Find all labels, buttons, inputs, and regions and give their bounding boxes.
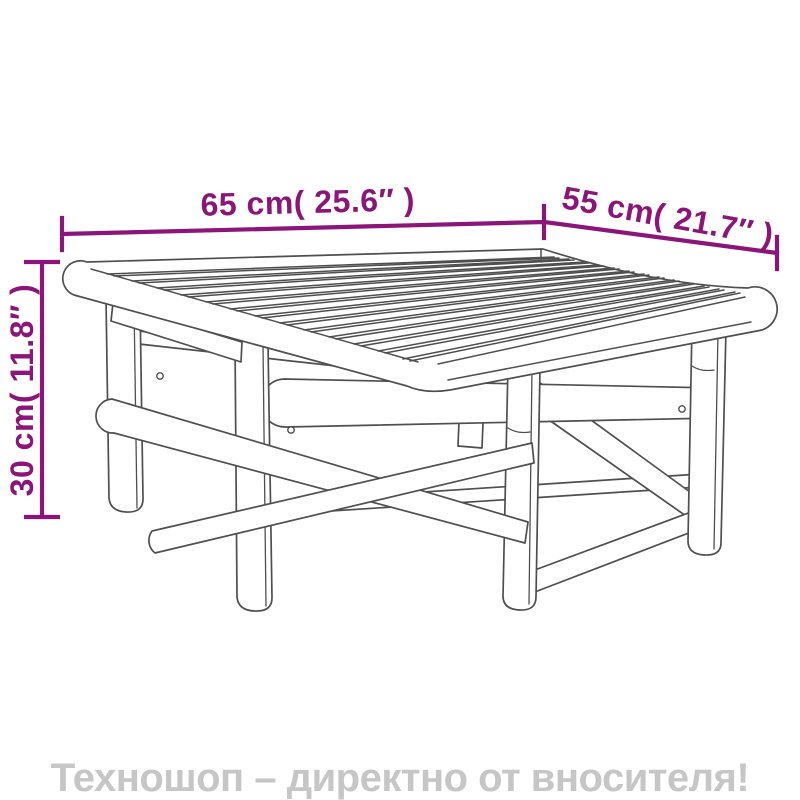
front-left-leg <box>235 340 272 611</box>
dimension-height-label: 30 cm( 11.8″ ) <box>4 284 40 497</box>
store-banner: Техношоп – директно от вносителя! <box>0 758 800 798</box>
front-apron <box>261 379 716 427</box>
tabletop <box>63 249 777 391</box>
table-drawing <box>63 249 777 611</box>
store-banner-text: Техношоп – директно от вносителя! <box>51 756 749 800</box>
dimension-depth-label: 55 cm( 21.7″ ) <box>559 179 776 253</box>
right-leg <box>688 325 726 555</box>
front-right-leg <box>503 365 540 610</box>
product-dimension-page: 65 cm( 25.6″ ) 55 cm( 21.7″ ) 30 cm( 11.… <box>0 0 800 800</box>
dimension-width-label: 65 cm( 25.6″ ) <box>200 181 415 223</box>
product-line-drawing: 65 cm( 25.6″ ) 55 cm( 21.7″ ) 30 cm( 11.… <box>0 0 800 800</box>
